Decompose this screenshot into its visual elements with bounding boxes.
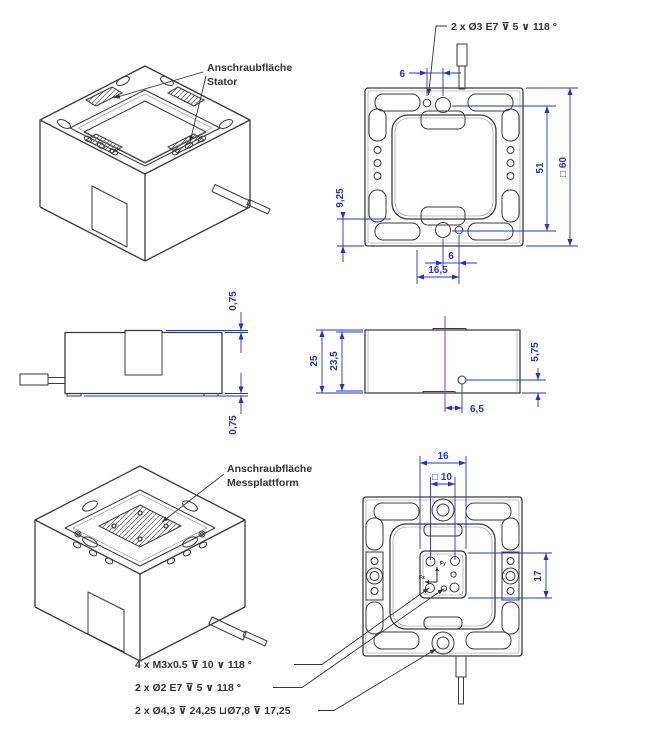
axis-label-fx: Fx: [419, 575, 425, 581]
dim-text-165: 16,5: [428, 265, 448, 276]
bottom-view-center-plate: Fy Fx: [419, 551, 466, 598]
top-callout-leader: [429, 26, 448, 95]
top-view-dim-60: □ 60: [526, 88, 578, 246]
view-iso-messplattform: Anschraubfläche Messplattform: [35, 463, 312, 661]
dim-text-51: 51: [535, 162, 546, 174]
bottom-view-side-sections: [366, 552, 519, 600]
side-left-dim-bottom: 0,75: [84, 373, 248, 435]
stator-label-line1: Anschraubfläche: [207, 62, 292, 74]
stator-label-line2: Stator: [207, 76, 237, 88]
mess-leader: [162, 474, 224, 522]
view-side-left: 0,75 0,75: [20, 291, 248, 435]
dim-text-075-bottom: 0,75: [228, 415, 239, 435]
iso-mess-body: [35, 466, 245, 661]
dim-text-60: □ 60: [558, 157, 569, 177]
view-bottom: Fy Fx 16 □ 10 17 4: [135, 451, 552, 717]
iso-stator-cable: [212, 185, 270, 215]
dim-text-65: 6,5: [470, 404, 484, 415]
top-view-cable: [457, 44, 467, 89]
dim-text-575: 5,75: [530, 342, 541, 362]
iso-stator-body: [40, 66, 250, 261]
dim-text-075-top: 0,75: [228, 291, 239, 311]
bottom-view-dim-17: 17: [468, 553, 552, 598]
top-view-dim-51: 51: [452, 106, 556, 231]
top-view-center-holes: [423, 98, 463, 238]
side-left-cable: [20, 374, 65, 385]
view-side-right: 25 23,5 5,75 6,5: [309, 316, 546, 415]
dim-text-10: □ 10: [432, 472, 452, 483]
top-callout-text: 2 x Ø3 E7 ⊽ 5 ∨ 118 °: [451, 21, 557, 33]
bottom-callout-leaders: [273, 588, 444, 711]
axis-label-fy: Fy: [440, 561, 446, 567]
callout-o2-text: 2 x Ø2 E7 ⊽ 5 ∨ 118 °: [135, 682, 241, 694]
mess-label-line1: Anschraubfläche: [227, 463, 312, 475]
side-right-body: [365, 330, 520, 393]
bottom-view-counterbores: [432, 499, 454, 654]
top-view-dim-925: 9,25: [335, 188, 391, 262]
dim-text-235: 23,5: [329, 351, 340, 371]
dim-text-6-top: 6: [399, 69, 405, 80]
side-right-hole: [458, 376, 466, 384]
callout-m3-text: 4 x M3x0.5 ⊽ 10 ∨ 118 °: [135, 659, 252, 671]
side-left-boss: [125, 333, 162, 376]
dim-text-6-bottom: 6: [448, 251, 454, 262]
mess-label-line2: Messplattform: [227, 477, 299, 489]
dim-text-25: 25: [309, 355, 320, 367]
dim-text-16: 16: [437, 451, 449, 462]
technical-drawing-canvas: Anschraubfläche Stator: [0, 0, 645, 738]
side-left-dim-top: 0,75: [166, 291, 248, 353]
side-right-dim-65: 6,5: [445, 384, 484, 415]
side-right-dim-235: 23,5: [329, 332, 363, 391]
dim-text-925: 9,25: [335, 188, 346, 208]
side-left-body: [65, 331, 222, 394]
view-iso-stator: Anschraubfläche Stator: [40, 62, 292, 261]
iso-stator-mount-patches: [86, 87, 204, 153]
dim-text-17: 17: [533, 570, 544, 582]
side-right-dim-575: 5,75: [466, 342, 546, 407]
bottom-view-cable: [456, 656, 466, 704]
view-top: 6 51 □ 60 9,25 6: [335, 21, 578, 284]
callout-o43-text: 2 x Ø4,3 ⊽ 24,25 ⊔Ø7,8 ⊽ 17,25: [135, 705, 291, 717]
